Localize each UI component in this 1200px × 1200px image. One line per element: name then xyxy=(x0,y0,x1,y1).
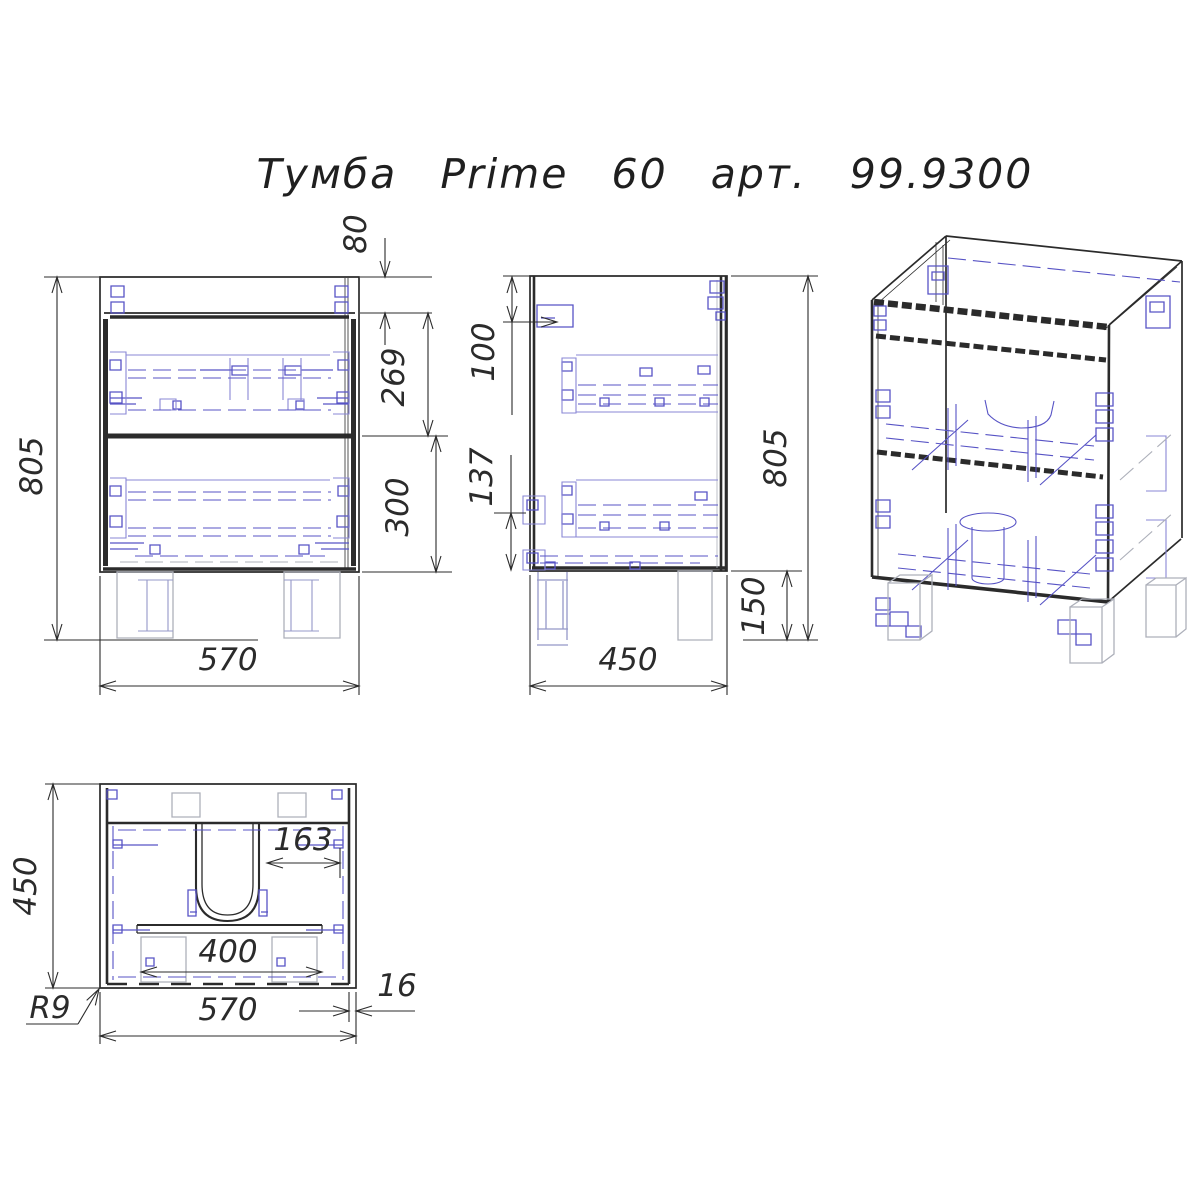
dim-front-width: 570 xyxy=(198,642,257,678)
sink-cutout-outer xyxy=(196,823,259,921)
dim-side-leg-height: 150 xyxy=(736,576,772,635)
drawing-title: Тумба Prime 60 арт. 99.9300 xyxy=(257,150,1034,198)
sink-cutout-inner xyxy=(202,823,253,915)
stretcher-detail xyxy=(137,925,322,933)
front-dimensions: 805 80 269 300 570 xyxy=(14,214,452,695)
dim-top-cutout-offset: 163 xyxy=(273,822,332,858)
dim-top-depth: 450 xyxy=(8,856,44,915)
side-dimensions: 100 137 805 150 450 xyxy=(464,276,818,695)
technical-drawing: Тумба Prime 60 арт. 99.9300 xyxy=(0,0,1200,1200)
drawer-boxes xyxy=(523,355,718,570)
leg-columns xyxy=(138,580,319,631)
side-legs xyxy=(537,571,712,645)
drawer-front-edges xyxy=(876,336,1106,477)
dim-front-lower-drawer: 300 xyxy=(380,477,416,536)
front-drawer-fittings xyxy=(110,286,349,562)
dim-top-wall-thickness: 16 xyxy=(377,968,416,1004)
top-rail-hatched xyxy=(874,302,1108,327)
fitting-squares xyxy=(527,281,725,569)
front-view: 805 80 269 300 570 xyxy=(14,214,452,695)
side-view: 100 137 805 150 450 xyxy=(464,276,818,695)
side-cabinet-outline xyxy=(530,276,727,571)
panel-edges xyxy=(534,276,726,571)
isometric-view xyxy=(872,236,1186,663)
inner-wall-lines xyxy=(345,278,348,568)
front-verticals xyxy=(872,300,1109,602)
iso-side-brackets xyxy=(1146,436,1166,578)
dim-side-fitting-offset: 100 xyxy=(466,322,502,381)
panel-edges xyxy=(872,236,1182,602)
dim-front-upper-drawer: 269 xyxy=(376,347,412,406)
dim-side-depth: 450 xyxy=(598,642,657,678)
front-legs xyxy=(117,572,340,638)
iso-legs xyxy=(888,575,1186,663)
dim-top-stretcher-width: 400 xyxy=(198,934,257,970)
dim-front-total-height: 805 xyxy=(14,436,50,495)
front-leg xyxy=(537,572,568,645)
dim-front-top-gap: 80 xyxy=(338,214,374,253)
drawer-boxes xyxy=(110,352,349,538)
outline xyxy=(530,276,727,571)
bottom-front-edge xyxy=(872,577,1108,602)
dim-side-bracket-offset: 137 xyxy=(464,447,500,506)
walls-and-divider xyxy=(106,319,354,566)
top-view: 450 163 400 R9 16 570 xyxy=(8,784,417,1044)
leg-outlines xyxy=(117,572,340,638)
dim-top-corner-radius: R9 xyxy=(29,990,70,1026)
fitting-squares xyxy=(110,286,349,554)
dim-top-width: 570 xyxy=(198,992,257,1028)
iso-drawer-parts xyxy=(912,400,1096,605)
iso-fittings xyxy=(874,266,1170,645)
side-fittings xyxy=(523,281,725,570)
drawing-canvas: Тумба Prime 60 арт. 99.9300 xyxy=(0,0,1200,1200)
rear-leg xyxy=(678,571,712,640)
dim-side-total-height: 805 xyxy=(758,428,794,487)
panel-thickness-lines xyxy=(878,240,1177,577)
